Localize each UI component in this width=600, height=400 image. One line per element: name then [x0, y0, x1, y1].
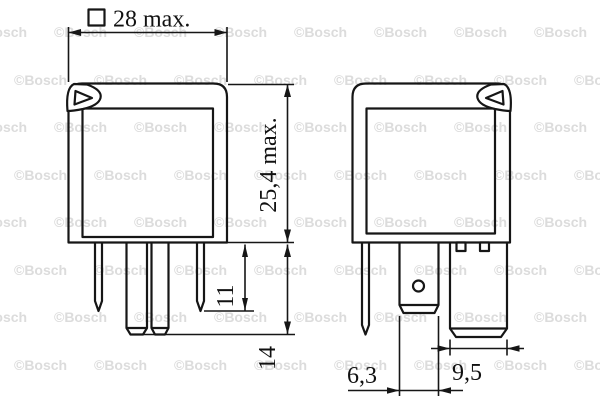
technical-drawing-page: ©Bosch©Bosch©Bosch©Bosch©Bosch©Bosch©Bos… — [0, 0, 600, 400]
dim-short-pin: 11 — [204, 245, 254, 312]
pin-blade-center-right — [152, 243, 169, 335]
dim-width-label: 28 max. — [113, 7, 190, 33]
blade-hole — [413, 281, 424, 292]
relay-side-view: 9,5 6,3 — [347, 84, 524, 397]
pin-thin-left — [95, 243, 102, 312]
relay-cover-face-side — [367, 109, 496, 234]
dim-width: 28 max. — [69, 7, 228, 83]
pin-blade-wide — [450, 243, 507, 338]
dim-height: 25,4 max. — [227, 85, 294, 243]
dim-center-blade: 6,3 — [347, 316, 463, 396]
dim-long-pin-label: 14 — [255, 346, 281, 370]
blade-shoulder-notch-right — [480, 243, 489, 252]
pin-blade-center-left — [127, 243, 148, 335]
pin-thin-right — [197, 243, 204, 312]
pin-blade-with-hole — [400, 243, 439, 314]
relay-cover-face — [83, 109, 214, 238]
relay-dimension-drawing: 28 max. 25,4 max. 11 — [0, 0, 600, 400]
pin-thin-side — [362, 243, 369, 335]
dim-wide-blade: 9,5 — [431, 340, 524, 387]
blade-shoulder-notch-left — [457, 243, 466, 252]
dim-short-pin-label: 11 — [213, 284, 239, 307]
relay-body-front — [69, 84, 228, 243]
dim-center-blade-label: 6,3 — [347, 363, 377, 389]
relay-front-view: 28 max. 25,4 max. 11 — [67, 7, 295, 371]
corner-tab-icon-mirrored — [477, 84, 511, 111]
square-symbol-icon — [89, 10, 105, 26]
dim-height-label: 25,4 max. — [256, 117, 282, 212]
corner-tab-icon — [67, 84, 101, 111]
dim-wide-blade-label: 9,5 — [452, 360, 482, 386]
